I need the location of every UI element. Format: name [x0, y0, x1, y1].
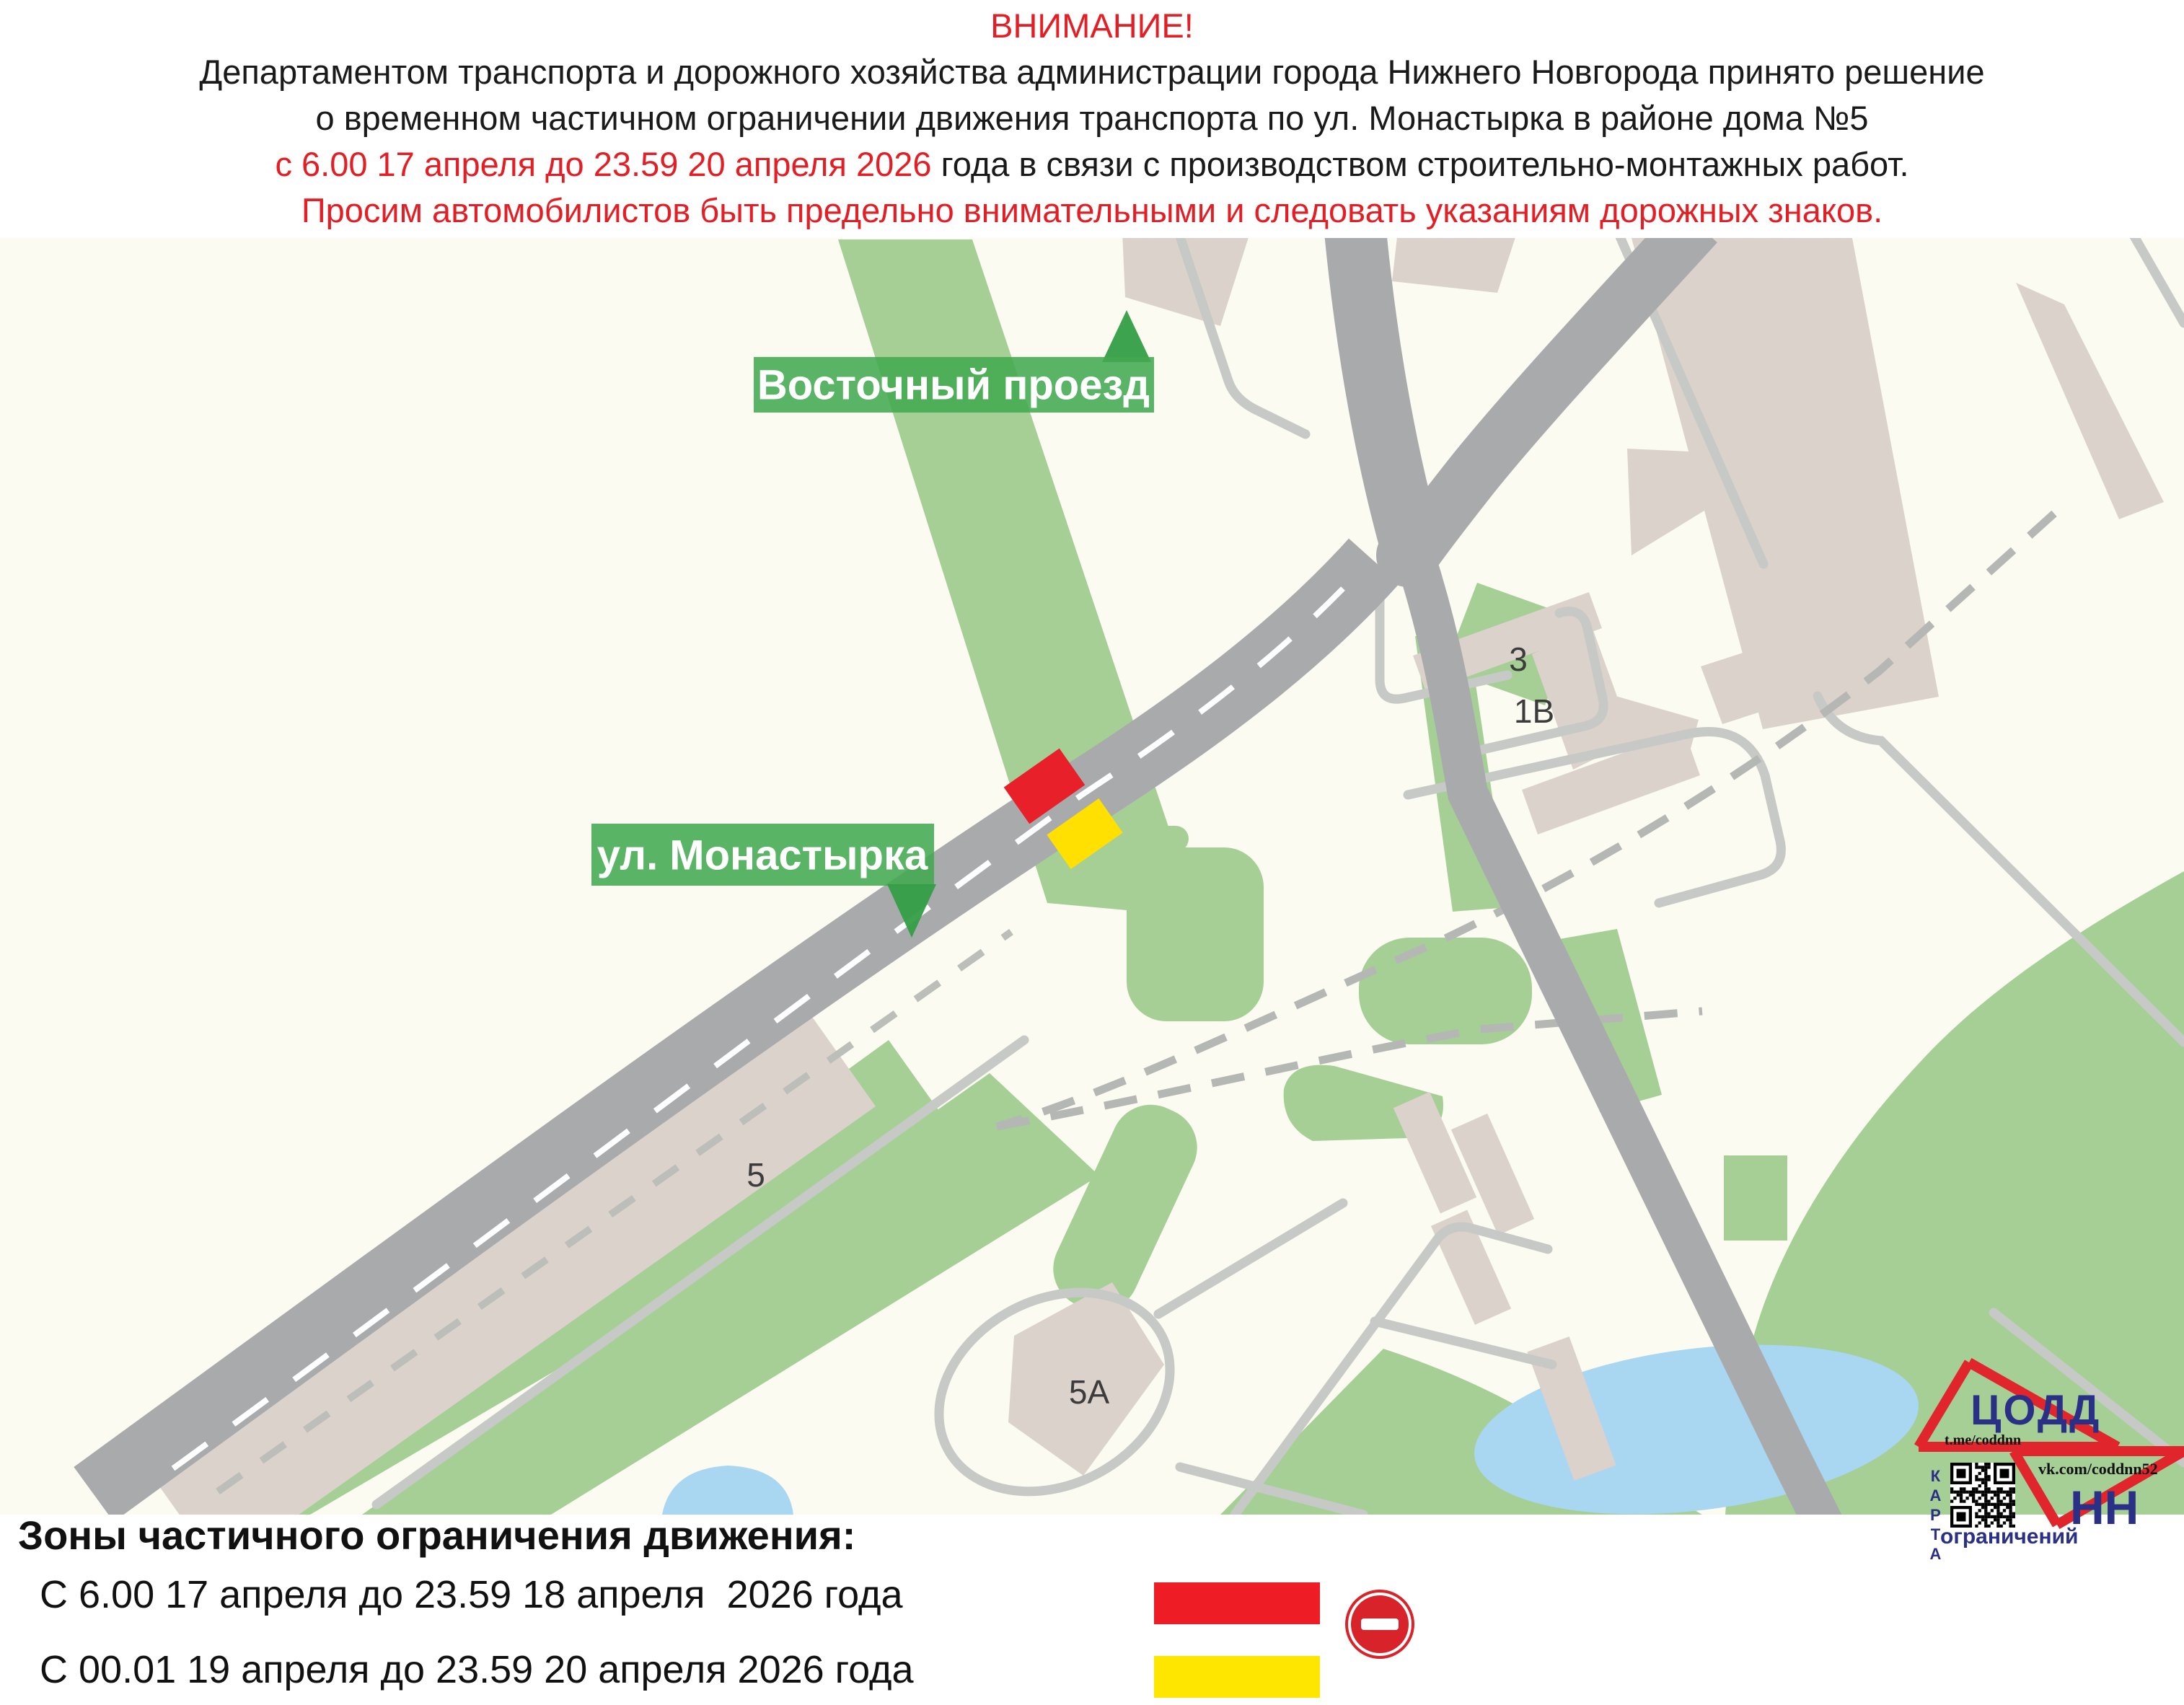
- notice-reason: года в связи с производством строительно…: [932, 145, 1909, 183]
- legend-period-2: С 00.01 19 апреля до 23.59 20 апреля 202…: [40, 1647, 914, 1692]
- logo-telegram-link: t.me/coddnn: [1945, 1432, 2021, 1449]
- street-label-vostochny: Восточный проезд: [757, 362, 1150, 409]
- traffic-map: Восточный проезд ул. Монастырка 3 1В 5 5…: [0, 238, 2184, 1515]
- building-label-5: 5: [747, 1156, 765, 1194]
- legend-title: Зоны частичного ограничения движения:: [18, 1512, 855, 1559]
- notice-line-4: Просим автомобилистов быть предельно вни…: [0, 188, 2184, 234]
- legend-swatch-yellow: [1154, 1656, 1320, 1698]
- notice-line-2: о временном частичном ограничении движен…: [0, 95, 2184, 141]
- notice-line-1: Департаментом транспорта и дорожного хоз…: [0, 49, 2184, 95]
- notice-header: ВНИМАНИЕ! Департаментом транспорта и дор…: [0, 3, 2184, 234]
- logo-restrictions-label: ограничений: [1940, 1525, 2079, 1549]
- no-entry-sign-icon: [1348, 1592, 1412, 1656]
- logo-vk-link: vk.com/coddnn52: [2038, 1460, 2158, 1479]
- notice-dates: с 6.00 17 апреля до 23.59 20 апреля 2026: [275, 145, 931, 183]
- legend-period-1: С 6.00 17 апреля до 23.59 18 апреля 2026…: [40, 1572, 903, 1617]
- map-canvas: Восточный проезд ул. Монастырка 3 1В 5 5…: [0, 238, 2184, 1515]
- logo-city-label: НН: [2070, 1480, 2139, 1535]
- road-junction: [1376, 524, 1440, 587]
- attention-title: ВНИМАНИЕ!: [0, 3, 2184, 49]
- street-label-monastyrka: ул. Монастырка: [597, 832, 928, 879]
- building-label-5a: 5А: [1069, 1373, 1110, 1411]
- qr-code-icon: [1950, 1463, 2015, 1528]
- logo-org-name: ЦОДД: [1971, 1386, 2101, 1435]
- building-label-3: 3: [1509, 640, 1528, 678]
- building-label-1v: 1В: [1514, 692, 1554, 730]
- notice-line-3: с 6.00 17 апреля до 23.59 20 апреля 2026…: [0, 141, 2184, 188]
- legend-swatch-red: [1154, 1582, 1320, 1624]
- codd-logo: ЦОДД t.me/coddnn vk.com/coddnn52 КАРТА Н…: [1904, 1344, 2184, 1568]
